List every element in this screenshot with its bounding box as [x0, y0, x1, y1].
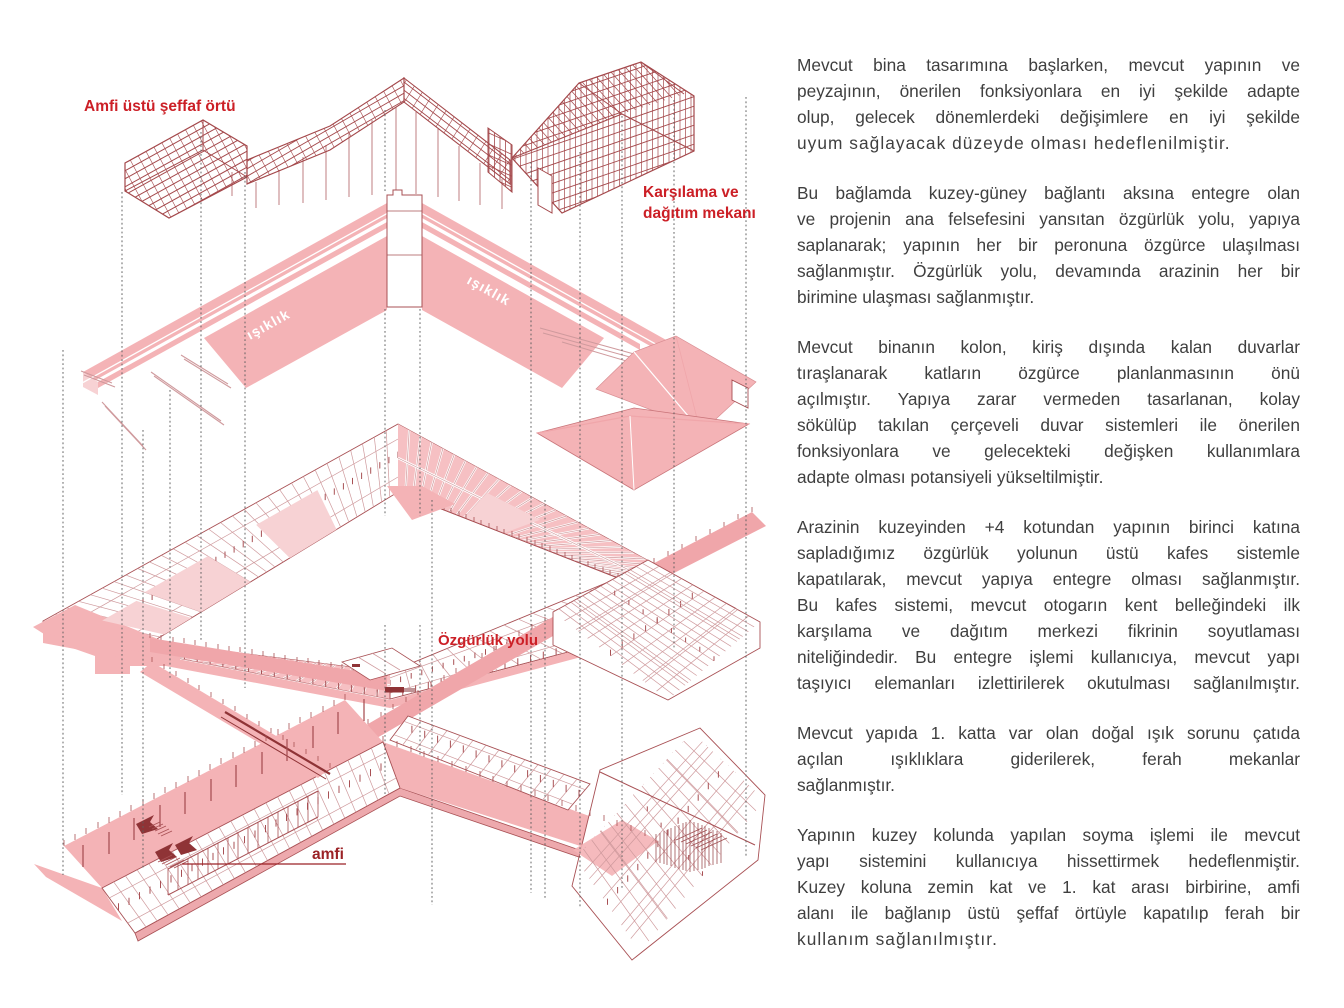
- svg-text:amfi: amfi: [312, 846, 344, 863]
- svg-text:Özgürlük yolu: Özgürlük yolu: [438, 632, 538, 649]
- svg-text:Karşılama ve: Karşılama ve: [643, 184, 739, 201]
- svg-text:Amfi üstü şeffaf örtü: Amfi üstü şeffaf örtü: [84, 98, 236, 115]
- svg-text:dağıtım mekanı: dağıtım mekanı: [643, 205, 756, 222]
